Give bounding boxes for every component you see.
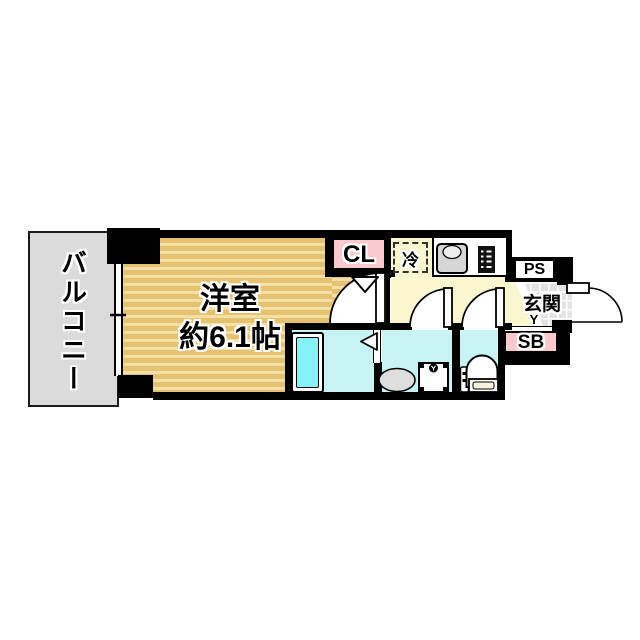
- bathroom-door-triangle-icon: [361, 333, 377, 350]
- floor-plan: バルコニー 洋室 約6.1帖 CL 冷 PS 玄関 Y SB: [0, 0, 640, 640]
- toilet-icon: [461, 356, 499, 393]
- room-size-label: 約6.1帖: [150, 314, 310, 354]
- stove-burner-marks-icon: [481, 251, 492, 269]
- entrance-door-swing-icon: [567, 283, 622, 322]
- closet-label: CL: [332, 240, 386, 270]
- entrance-step-mark: Y: [524, 311, 544, 327]
- shoe-box-label: SB: [506, 333, 556, 352]
- washing-machine-marks-icon: [418, 362, 449, 393]
- pipe-space-label: PS: [516, 259, 553, 280]
- refrigerator-label: 冷: [393, 244, 428, 272]
- wash-basin-icon: [379, 369, 415, 392]
- balcony-label: バルコニー: [55, 248, 91, 394]
- washroom-door-swing-icon: [410, 288, 452, 327]
- room-label: 洋室: [150, 276, 310, 316]
- fixtures-overlay: [0, 0, 640, 640]
- sink-basin-icon: [443, 246, 461, 259]
- toilet-door-swing-icon: [462, 288, 504, 327]
